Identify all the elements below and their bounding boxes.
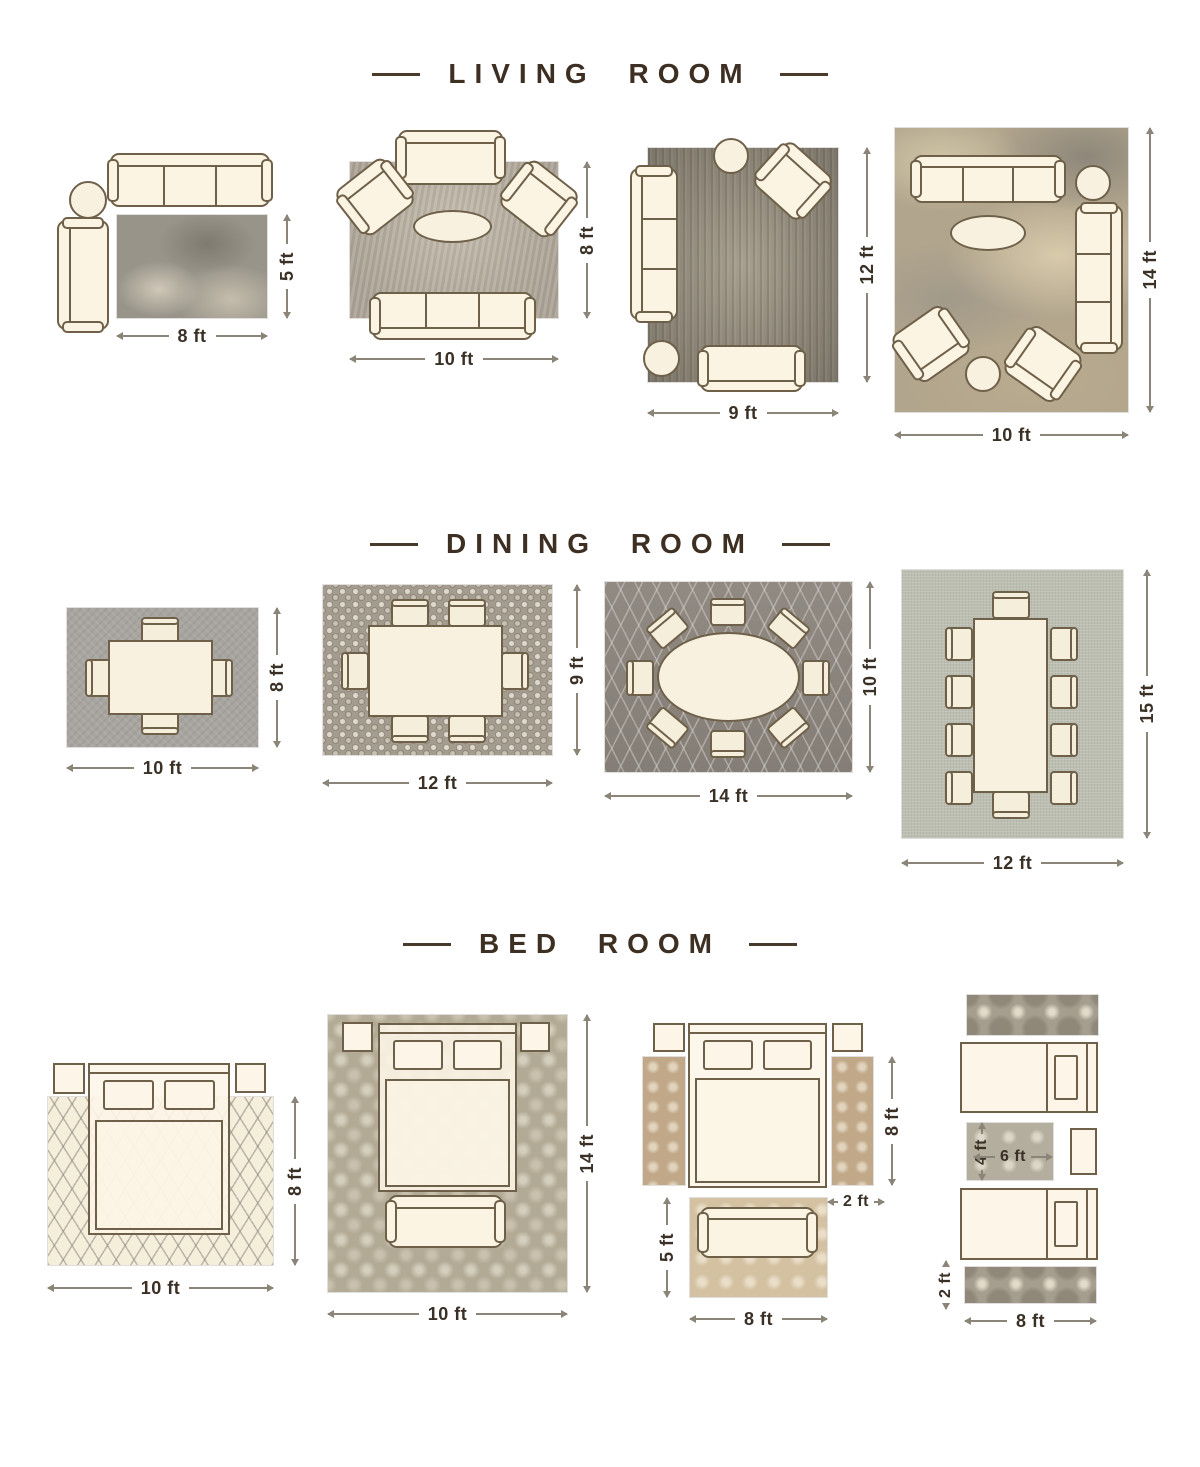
sofa-seat — [112, 167, 268, 205]
dimension-line — [666, 1198, 668, 1225]
dimension-line — [869, 705, 871, 772]
title-dash — [370, 543, 418, 546]
title-dash — [372, 73, 420, 76]
dining-chair — [710, 600, 746, 626]
dining-chair — [343, 652, 369, 690]
accent-rug-height-label: 5 ft — [657, 1233, 678, 1262]
sofa-back — [390, 1197, 501, 1209]
dimension-line — [605, 795, 700, 797]
twin-bed — [960, 1188, 1098, 1260]
dimension-line — [323, 782, 409, 784]
title-dash — [782, 543, 830, 546]
dimension-line — [965, 1320, 1007, 1322]
pillow — [763, 1040, 813, 1070]
nightstand — [653, 1023, 685, 1052]
title-dash — [749, 943, 797, 946]
rug-height-dimension: 8 ft — [575, 162, 599, 318]
dimension-line — [981, 1123, 983, 1134]
dimension-line — [586, 1015, 588, 1126]
rug-width-dimension: 10 ft — [48, 1277, 273, 1299]
rug-width-label: 10 ft — [428, 1304, 468, 1325]
dining-layout-12x9: 9 ft 12 ft — [315, 575, 585, 795]
dimension-line — [974, 1156, 995, 1158]
rug-height-dimension: 8 ft — [265, 608, 289, 747]
dimension-line — [48, 1287, 132, 1289]
dining-table — [973, 618, 1048, 793]
bed-room-title-text: BED ROOM — [479, 928, 721, 960]
rug-width-label: 10 ft — [141, 1278, 181, 1299]
sofa-seat — [1077, 207, 1110, 349]
headboard — [380, 1025, 515, 1034]
runner-width-label: 2 ft — [937, 1272, 955, 1298]
dining-room-title-text: DINING ROOM — [446, 528, 754, 560]
dimension-line — [891, 1144, 893, 1186]
headboard — [1088, 1190, 1096, 1258]
bed-body — [962, 1044, 1048, 1111]
dining-chair — [710, 730, 746, 756]
bench-sofa — [57, 220, 109, 330]
sofa-seat — [915, 168, 1061, 201]
dimension-line — [191, 767, 258, 769]
dining-room-title: DINING ROOM — [0, 528, 1200, 560]
dimension-line — [874, 1201, 884, 1203]
pillow-section — [1048, 1190, 1088, 1258]
dimension-line — [294, 1097, 296, 1159]
runner-length-label: 8 ft — [1016, 1311, 1045, 1332]
loveseat — [398, 130, 503, 185]
dining-chair — [1050, 723, 1076, 757]
sofa-back — [112, 155, 268, 167]
dimension-line — [586, 1181, 588, 1292]
rug-width-dimension: 10 ft — [328, 1303, 567, 1325]
rug-width-dimension: 8 ft — [117, 325, 267, 347]
dining-chair — [391, 715, 429, 741]
sofa-back — [59, 222, 71, 328]
pillow — [164, 1080, 215, 1110]
dining-chair — [947, 771, 973, 805]
accent-rug-width-dimension: 6 ft — [974, 1146, 1052, 1168]
sofa-seat — [643, 170, 676, 318]
three-seat-sofa — [913, 155, 1063, 203]
dimension-line — [828, 1201, 838, 1203]
sofa-seat — [374, 294, 531, 327]
rug-width-label: 10 ft — [992, 425, 1032, 446]
dining-table — [108, 640, 213, 715]
sofa-seat — [390, 1209, 501, 1246]
nightstand — [520, 1022, 550, 1052]
dining-chair — [1050, 627, 1076, 661]
pillow — [453, 1040, 503, 1070]
rug-height-label: 8 ft — [285, 1167, 306, 1196]
dimension-line — [1149, 298, 1151, 412]
dimension-line — [576, 693, 578, 756]
pillow-row — [380, 1034, 515, 1070]
runner-length-dimension: 8 ft — [965, 1310, 1096, 1332]
dining-chair — [1050, 675, 1076, 709]
rug-width-label: 12 ft — [993, 853, 1033, 874]
dimension-line — [767, 412, 839, 414]
dimension-line — [945, 1261, 947, 1267]
dining-chair — [1050, 771, 1076, 805]
living-room-title: LIVING ROOM — [0, 58, 1200, 90]
accent-rug-height-dimension: 5 ft — [655, 1198, 679, 1297]
dimension-line — [891, 1057, 893, 1099]
bed-body — [962, 1190, 1048, 1258]
rug-width-label: 10 ft — [143, 758, 183, 779]
nightstand — [235, 1063, 266, 1093]
round-side-table — [713, 138, 749, 174]
dimension-line — [782, 1318, 827, 1320]
rug-height-dimension: 5 ft — [275, 215, 299, 318]
round-side-table — [1075, 165, 1111, 201]
dimension-line — [666, 1270, 668, 1297]
dining-chair — [992, 791, 1030, 817]
three-seat-sofa — [630, 168, 678, 320]
nightstand — [1070, 1128, 1097, 1175]
title-dash — [403, 943, 451, 946]
rug-width-dimension: 12 ft — [902, 852, 1123, 874]
oval-coffee-table — [413, 210, 492, 243]
dining-chair — [802, 660, 828, 696]
headboard — [1088, 1044, 1096, 1111]
dimension-line — [328, 1313, 419, 1315]
runner-width-dimension: 2 ft — [828, 1191, 884, 1213]
dimension-line — [1031, 1156, 1052, 1158]
dimension-line — [586, 263, 588, 319]
dining-chair — [448, 601, 486, 627]
rug-width-label: 9 ft — [729, 403, 758, 424]
dimension-line — [866, 293, 868, 382]
dimension-line — [476, 1313, 567, 1315]
runner-length-dimension: 8 ft — [880, 1057, 904, 1185]
rug-height-dimension: 8 ft — [283, 1097, 307, 1265]
dimension-line — [869, 582, 871, 649]
area-rug-8x5 — [117, 215, 267, 318]
rug-width-dimension: 12 ft — [323, 772, 552, 794]
accent-rug-width-label: 6 ft — [1000, 1148, 1026, 1166]
dimension-line — [276, 700, 278, 747]
runner-rug-8x2 — [643, 1057, 685, 1185]
dimension-line — [286, 215, 288, 244]
blanket — [385, 1079, 510, 1187]
pillow — [703, 1040, 753, 1070]
blanket — [95, 1120, 223, 1230]
sofa-back — [1110, 207, 1121, 349]
round-side-table — [69, 181, 107, 219]
loveseat — [700, 345, 803, 392]
dimension-line — [294, 1204, 296, 1266]
rug-width-label: 8 ft — [178, 326, 207, 347]
pillow — [393, 1040, 443, 1070]
rug-height-label: 9 ft — [567, 656, 588, 685]
blanket — [695, 1078, 820, 1183]
sofa-back — [400, 132, 501, 144]
pillow — [103, 1080, 154, 1110]
rug-height-label: 12 ft — [857, 245, 878, 285]
sofa-back — [702, 1209, 813, 1220]
dining-chair — [947, 675, 973, 709]
runner-rug-8x2 — [832, 1057, 873, 1185]
oval-coffee-table — [950, 215, 1026, 251]
round-side-table — [965, 356, 1001, 392]
dimension-line — [1054, 1320, 1096, 1322]
rug-width-dimension: 10 ft — [67, 757, 258, 779]
dimension-line — [576, 585, 578, 648]
rug-height-dimension: 14 ft — [575, 1015, 599, 1292]
sofa-seat — [702, 1220, 813, 1256]
nightstand — [342, 1022, 373, 1052]
dimension-line — [866, 148, 868, 237]
dimension-line — [945, 1303, 947, 1309]
rug-height-label: 8 ft — [267, 663, 288, 692]
queen-bed — [378, 1023, 517, 1192]
bench-loveseat — [388, 1195, 503, 1248]
rug-height-dimension: 12 ft — [855, 148, 879, 382]
dining-chair — [992, 593, 1030, 619]
dimension-line — [1146, 732, 1148, 838]
loveseat — [700, 1207, 815, 1258]
round-side-table — [643, 340, 680, 377]
dimension-line — [981, 1170, 983, 1181]
dining-table — [368, 625, 503, 717]
dimension-line — [216, 335, 268, 337]
queen-bed — [88, 1063, 230, 1235]
bedroom-layout-runners: 8 ft 2 ft 5 ft 8 ft — [635, 1015, 910, 1330]
living-layout-10x14: 14 ft 10 ft — [890, 120, 1180, 440]
sofa-seat — [702, 347, 801, 380]
rug-width-dimension: 10 ft — [895, 424, 1128, 446]
oval-dining-table — [657, 632, 800, 722]
dimension-line — [757, 795, 852, 797]
title-dash — [780, 73, 828, 76]
dimension-line — [483, 358, 558, 360]
bedroom-layout-10x14: 14 ft 10 ft — [322, 1010, 597, 1320]
dimension-line — [350, 358, 425, 360]
living-layout-9x12: 12 ft 9 ft — [618, 130, 880, 430]
accent-rug-width-dimension: 8 ft — [690, 1308, 827, 1330]
twin-bed — [960, 1042, 1098, 1113]
dining-chair — [947, 723, 973, 757]
dimension-line — [1146, 570, 1148, 676]
rug-width-dimension: 9 ft — [648, 402, 838, 424]
rug-width-label: 12 ft — [418, 773, 458, 794]
rug-width-label: 14 ft — [709, 786, 749, 807]
runner-width-label: 2 ft — [843, 1193, 869, 1211]
three-seat-sofa — [110, 153, 270, 207]
pillow-section — [1048, 1044, 1088, 1111]
dining-layout-12x15: 15 ft 12 ft — [895, 565, 1170, 880]
rug-width-dimension: 14 ft — [605, 785, 852, 807]
dimension-line — [286, 289, 288, 318]
runner-length-label: 8 ft — [882, 1107, 903, 1136]
dimension-line — [117, 335, 169, 337]
pillow — [1054, 1201, 1078, 1247]
living-layout-10x8: 8 ft 10 ft — [330, 120, 605, 375]
sofa-seat — [71, 222, 107, 328]
rug-height-dimension: 9 ft — [565, 585, 589, 755]
dimension-line — [1149, 128, 1151, 242]
dining-chair — [448, 715, 486, 741]
pillow-row — [90, 1074, 228, 1110]
runner-rug — [967, 995, 1098, 1035]
rug-height-label: 10 ft — [860, 657, 881, 697]
queen-bed — [688, 1023, 827, 1188]
dimension-line — [466, 782, 552, 784]
living-room-title-text: LIVING ROOM — [448, 58, 751, 90]
pillow — [1054, 1055, 1078, 1101]
rug-height-label: 15 ft — [1137, 684, 1158, 724]
dining-chair — [501, 652, 527, 690]
dimension-line — [648, 412, 720, 414]
bedroom-layout-twin-beds: 4 ft 6 ft 2 ft 8 ft — [930, 988, 1200, 1338]
dimension-line — [67, 767, 134, 769]
bed-room-title: BED ROOM — [0, 928, 1200, 960]
bedroom-layout-10x8: 8 ft 10 ft — [40, 1055, 310, 1300]
sofa-back — [374, 327, 531, 338]
dimension-line — [189, 1287, 273, 1289]
dimension-line — [902, 862, 984, 864]
rug-size-guide: LIVING ROOM 8 ft 5 ft 8 ft 10 ft 12 ft 9… — [0, 0, 1200, 1467]
rug-height-label: 8 ft — [577, 226, 598, 255]
dimension-line — [276, 608, 278, 655]
headboard — [90, 1065, 228, 1074]
sofa-back — [632, 170, 643, 318]
dimension-line — [690, 1318, 735, 1320]
dining-layout-14x10: 10 ft 14 ft — [598, 572, 888, 807]
rug-height-dimension: 15 ft — [1135, 570, 1159, 838]
rug-height-label: 5 ft — [277, 252, 298, 281]
rug-height-label: 14 ft — [1140, 250, 1161, 290]
dimension-line — [586, 162, 588, 218]
nightstand — [832, 1023, 863, 1052]
dining-layout-10x8: 8 ft 10 ft — [55, 595, 305, 785]
sofa-back — [915, 157, 1061, 168]
rug-height-dimension: 10 ft — [858, 582, 882, 772]
dining-chair — [628, 660, 654, 696]
pillow-row — [690, 1034, 825, 1070]
dimension-line — [1040, 434, 1128, 436]
dining-chair — [947, 627, 973, 661]
runner-rug — [965, 1267, 1096, 1303]
dining-chair — [391, 601, 429, 627]
living-layout-8x5: 8 ft 5 ft — [45, 135, 310, 365]
rug-width-label: 10 ft — [434, 349, 474, 370]
three-seat-sofa — [372, 292, 533, 340]
nightstand — [53, 1063, 85, 1094]
rug-height-dimension: 14 ft — [1138, 128, 1162, 412]
dimension-line — [895, 434, 983, 436]
rug-width-dimension: 10 ft — [350, 348, 558, 370]
headboard — [690, 1025, 825, 1034]
runner-width-dimension: 2 ft — [934, 1261, 958, 1309]
rug-height-label: 14 ft — [577, 1134, 598, 1174]
accent-rug-width-label: 8 ft — [744, 1309, 773, 1330]
dimension-line — [1041, 862, 1123, 864]
sofa-back — [702, 380, 801, 390]
sofa-seat — [400, 144, 501, 183]
three-seat-sofa — [1075, 205, 1123, 351]
